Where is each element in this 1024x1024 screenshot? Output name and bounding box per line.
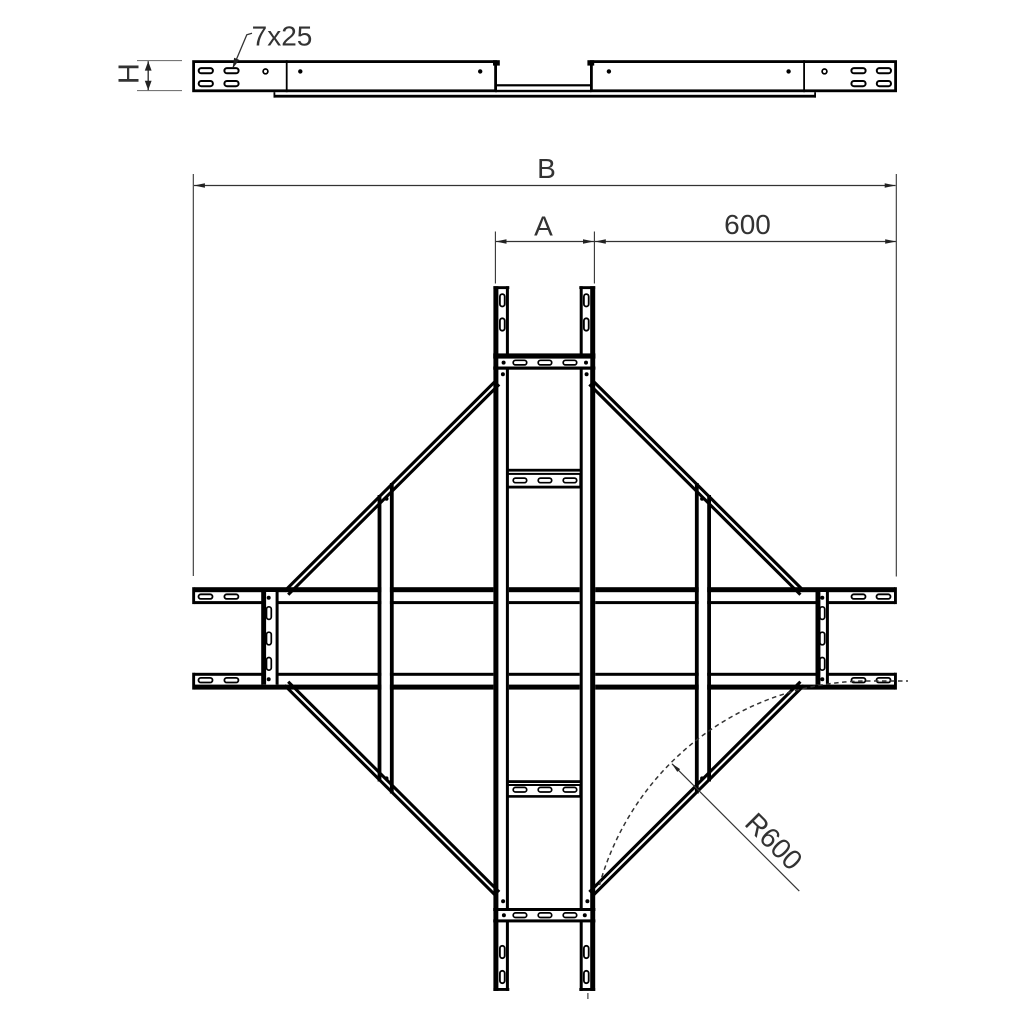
svg-text:A: A (534, 211, 553, 242)
svg-text:H: H (114, 63, 146, 84)
svg-text:600: 600 (724, 209, 771, 240)
svg-text:B: B (537, 153, 556, 184)
svg-text:7x25: 7x25 (252, 21, 313, 52)
